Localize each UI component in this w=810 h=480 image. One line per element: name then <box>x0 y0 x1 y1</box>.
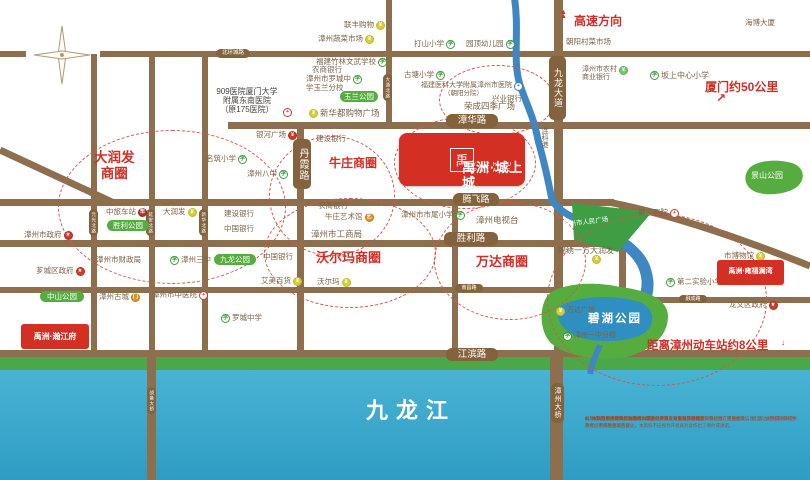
business-circle-label: 大润发商圈 <box>94 150 135 181</box>
poi: 漳州市政府★ <box>24 231 73 240</box>
distance-note: 高速方向 <box>574 15 622 29</box>
gov-icon: ★ <box>64 231 73 240</box>
poi: ¥万达广场 <box>556 307 595 316</box>
direction-arrow-icon: ▲▲ <box>560 11 567 19</box>
poi: 沃尔玛¥ <box>317 278 351 287</box>
shop-icon: ¥ <box>342 278 351 287</box>
poi: 龙文区政府★ <box>729 301 778 310</box>
direction-arrow-icon: ↓ <box>781 341 785 346</box>
map-area-label: 九龙江 <box>366 399 456 423</box>
poi-label: 芗城区政府 <box>36 267 74 276</box>
location-map: 禹 禹洲·城上城 YUZHOU PALACE 温馨提示： 1、本商业广告内的所有… <box>0 0 810 480</box>
poi-label: 漳州一中分校 <box>574 332 616 340</box>
road-name-badge: 南昌路 <box>455 284 483 292</box>
park-badge: 九龙公园 <box>214 254 256 265</box>
poi: 漳州市市尾小学学 <box>401 211 465 220</box>
poi-label: 漳州市中医院 <box>152 291 197 300</box>
poi-label: 大润发 <box>163 208 186 217</box>
poi: 海博大厦 <box>745 19 775 28</box>
poi-label: 联丰购物 <box>344 21 374 30</box>
poi: 中旅车站车 <box>106 208 147 217</box>
poi: 艾美百货¥ <box>261 277 302 286</box>
poi: 第三医院+ <box>638 209 679 218</box>
road-name-badge: 九龙大道 <box>549 56 566 120</box>
park-badge: 中山公园 <box>40 291 84 302</box>
poi: ¥新华都购物广场 <box>309 109 380 119</box>
poi-label: 园顶幼儿园 <box>466 40 504 49</box>
poi: （朝阳分院） <box>444 90 483 97</box>
poi: 园顶幼儿园学 <box>466 40 515 49</box>
compass-icon <box>34 26 90 84</box>
school-icon: 学 <box>279 170 288 179</box>
school-icon: 学 <box>378 58 387 67</box>
poi: 中国银行 <box>224 225 254 234</box>
poi-label: 坂上中心小学 <box>661 71 709 80</box>
business-circle-label-line: 万达商圈 <box>476 255 528 270</box>
hospital-blue-icon: + <box>514 82 523 91</box>
gov-icon: ★ <box>769 301 778 310</box>
poi-label: 建设银行 <box>224 210 254 219</box>
poi: 漳州八中学 <box>247 170 288 179</box>
hospital-icon: + <box>283 108 292 117</box>
poi-label: 漳州八中 <box>247 170 277 179</box>
poi-label: （朝阳分院） <box>444 90 483 97</box>
park-badge: 胜利公园 <box>107 220 149 231</box>
road-name-badge: 新华北路 <box>199 209 208 236</box>
poi: 漳州市中医院+ <box>152 291 208 300</box>
school-icon: 学 <box>666 278 675 287</box>
poi-label: 锦绣一方大润发 <box>558 246 614 255</box>
poi-label: 909医院厦门大学附属东南医院（原175医院） <box>210 87 284 115</box>
project-banner: 禹 禹洲·城上城 YUZHOU PALACE <box>399 133 525 186</box>
art-icon: 艺 <box>365 213 374 222</box>
shop-green-icon: ¥ <box>619 66 628 75</box>
business-circle-label-line: 牛庄商圈 <box>329 157 377 171</box>
gate-icon: 门 <box>131 293 140 302</box>
poi-label: 龙文区政府 <box>729 301 767 310</box>
road-name-badge: 丹霞路 <box>293 139 311 189</box>
road-name-badge: 漳华路 <box>446 114 498 128</box>
poi: 农商银行 <box>318 202 348 211</box>
project-name-en: YUZHOU PALACE <box>462 162 525 174</box>
poi: 漳州蔬菜市场¥ <box>318 35 374 44</box>
road-name-badge: 腾飞路 <box>453 193 499 206</box>
road-name-badge: 战备大桥 <box>147 387 156 414</box>
school-icon: 学 <box>436 71 445 80</box>
business-circle-label: 万达商圈 <box>476 255 528 270</box>
canal-label: 连科港 <box>539 127 549 148</box>
poi: ¥ <box>592 255 601 264</box>
bridge <box>147 350 156 480</box>
poi: 联丰购物¥ <box>344 21 385 30</box>
poi-label: 中旅车站 <box>106 208 136 217</box>
poi: 建设银行 <box>316 135 346 144</box>
project-side-badge: ······ ▪ ······禹洲·雍禧澜湾 <box>717 260 784 285</box>
poi: 朝阳村菜市场 <box>566 38 611 47</box>
poi-label: 漳州市工商局 <box>311 230 362 240</box>
poi-label: 中国银行 <box>263 253 293 262</box>
poi-label: 荣成四季广场 <box>464 102 515 112</box>
direction-arrow-icon: ↗ <box>716 95 726 102</box>
shop-icon: ¥ <box>293 277 302 286</box>
poi: 芗城区政府★ <box>36 267 85 276</box>
poi: 漳州市财政局 <box>96 256 141 265</box>
poi: 漳州市农村商业银行¥ <box>582 66 628 82</box>
poi: 银河广场¥ <box>256 131 297 140</box>
business-circle-label: 牛庄商圈 <box>329 157 377 171</box>
poi: 锦绣一方大润发 <box>558 246 614 255</box>
shop-icon: ¥ <box>376 21 385 30</box>
business-circle-label-line: 大润发 <box>94 150 135 166</box>
poi: 大润发¥ <box>163 208 197 217</box>
school-icon: 学 <box>170 256 179 265</box>
school-icon: 学 <box>456 211 465 220</box>
poi-label: 第三医院 <box>638 209 668 218</box>
gov-icon: ★ <box>76 267 85 276</box>
poi: 漳州电视台 <box>476 216 519 226</box>
poi: 牛庄艺术馆艺 <box>325 213 374 222</box>
poi: 学漳州三中 <box>170 256 211 265</box>
poi: 荣成四季广场 <box>464 102 515 112</box>
shop-icon: ¥ <box>556 307 565 316</box>
road-name-badge: 融成路 <box>679 295 707 303</box>
business-circle-label-line: 商圈 <box>94 166 135 182</box>
school-icon: 学 <box>221 314 230 323</box>
poi: 漳州古城门 <box>99 293 140 302</box>
poi: 漳州市工商局 <box>311 230 362 240</box>
bus-icon: 车 <box>138 208 147 217</box>
road-name-badge: 漳州大桥 <box>551 383 564 423</box>
poi: 建设银行 <box>224 210 254 219</box>
poi-label: 罗城中学 <box>232 314 262 323</box>
park-badge: 玉兰公园 <box>340 91 378 102</box>
poi-label: 艾美百货 <box>261 277 291 286</box>
road-name-badge: 大通北路 <box>383 74 392 101</box>
school-icon: 学 <box>506 40 515 49</box>
business-circle-label: 沃尔玛商圈 <box>316 251 381 266</box>
poi-label: 中国银行 <box>224 225 254 234</box>
poi: 学漳州一中分校 <box>563 332 616 341</box>
poi-label: 新华都购物广场 <box>320 109 380 119</box>
poi-label: 海博大厦 <box>745 19 775 28</box>
poi: 漳州市罗城中学玉兰分校学 <box>306 75 362 92</box>
poi: 909医院厦门大学附属东南医院（原175医院） <box>210 87 284 115</box>
school-icon: 学 <box>353 75 362 84</box>
poi-label: 福建医科大学附属漳州市医院 <box>421 82 512 90</box>
disclaimer-line: 5、本广告宣传资料如有变动以政府批文为准，敬请留意最新资料。 <box>585 416 718 423</box>
poi-label: 第二实验小学 <box>677 278 722 287</box>
poi: 学罗城中学 <box>221 314 262 323</box>
poi-label: 牛庄艺术馆 <box>325 213 363 222</box>
school-icon: 学 <box>238 155 247 164</box>
road-name-badge: 江滨路 <box>446 348 498 361</box>
poi-label: 建设银行 <box>316 135 346 144</box>
hospital-icon: + <box>199 291 208 300</box>
poi-label: 漳州古城 <box>99 293 129 302</box>
badge-deco: ······ ▪ ······ <box>39 334 71 338</box>
poi-label: 万达广场 <box>567 307 595 315</box>
poi: + <box>283 108 292 117</box>
poi-label: 朝阳村菜市场 <box>566 38 611 47</box>
poi: 学第二实验小学 <box>666 278 722 287</box>
poi-label: 沃尔玛 <box>317 278 340 287</box>
poi-label: 漳州三中 <box>181 256 211 265</box>
poi-label: 银河广场 <box>256 131 286 140</box>
road-name-badge: 北环城路 <box>216 49 250 58</box>
poi-label: 漳州市农村商业银行 <box>582 66 617 82</box>
poi-label: 漳州市政府 <box>24 231 62 240</box>
poi: 古塘小学学 <box>404 71 445 80</box>
poi: 打山小学学 <box>414 40 455 49</box>
poi-label: 农商银行 <box>318 202 348 211</box>
map-area-label: 景山公园 <box>751 172 783 181</box>
hospital-icon: + <box>670 209 679 218</box>
shop-icon: ¥ <box>592 255 601 264</box>
road-name-badge: 元光北路 <box>89 209 98 236</box>
project-side-badge: 禹洲·瀚江府······ ▪ ······ <box>21 324 89 349</box>
shop-icon: ¥ <box>188 208 197 217</box>
road-name-badge: 胜利路 <box>444 232 498 246</box>
map-area-label: 碧湖公园 <box>588 313 642 326</box>
shop-icon: ¥ <box>365 35 374 44</box>
poi-label: 古塘小学 <box>404 71 434 80</box>
poi-label: 漳州市罗城中学玉兰分校 <box>306 75 351 92</box>
school-icon: 学 <box>563 332 572 341</box>
poi: 中国银行 <box>263 253 293 262</box>
poi-label: 漳州蔬菜市场 <box>318 35 363 44</box>
project-side-badge-name: 禹洲·雍禧澜湾 <box>728 268 772 277</box>
poi-label: 漳州电视台 <box>476 216 519 226</box>
poi: 名筑小学学 <box>206 155 247 164</box>
school-icon: 学 <box>650 71 659 80</box>
shop-icon: ¥ <box>309 109 318 118</box>
school-icon: 学 <box>446 40 455 49</box>
poi-label: 名筑小学 <box>206 155 236 164</box>
poi: 学坂上中心小学 <box>650 71 709 80</box>
poi-label: 漳州市财政局 <box>96 256 141 265</box>
business-circle-label-line: 沃尔玛商圈 <box>316 251 381 266</box>
poi-label: 打山小学 <box>414 40 444 49</box>
distance-note: 距离漳州动车站约8公里 <box>647 340 768 353</box>
poi-label: 漳州市市尾小学 <box>401 211 454 220</box>
shop-red-icon: ¥ <box>288 131 297 140</box>
